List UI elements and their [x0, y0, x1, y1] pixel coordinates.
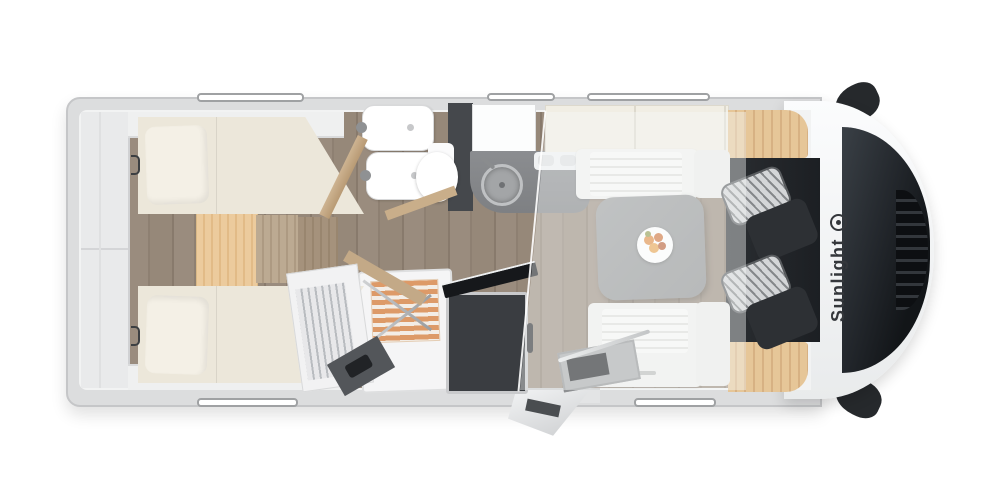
- window-top-rear: [197, 93, 304, 102]
- rear-storage-shelf-divider: [81, 248, 128, 250]
- mattress-seam: [216, 286, 217, 383]
- drain-icon: [499, 182, 505, 188]
- handle-icon: [131, 326, 140, 346]
- faucet-icon: [360, 170, 371, 181]
- window-top-dinette: [587, 93, 710, 101]
- entry-door-open: [508, 390, 590, 442]
- faucet-icon: [356, 122, 367, 133]
- motorhome-floorplan: Sunlight: [0, 0, 1000, 500]
- pillow: [145, 125, 210, 205]
- brand-lockup: Sunlight: [819, 193, 857, 343]
- kitchen-cabinet: [472, 104, 536, 153]
- washbasin: [362, 105, 434, 151]
- drain-icon: [407, 124, 414, 131]
- sun-icon: [830, 214, 847, 231]
- rear-storage: [81, 112, 130, 388]
- rear-storage-seam: [99, 112, 101, 388]
- handle-icon: [131, 155, 140, 175]
- kitchen-sink: [481, 164, 523, 206]
- door-panel: [525, 399, 561, 418]
- window-bottom-rear: [197, 398, 298, 407]
- fridge-cabinet: [446, 292, 528, 394]
- window-bottom-dinette: [634, 398, 716, 407]
- pillow: [145, 295, 210, 375]
- appliance-icon: [344, 354, 374, 379]
- window-top-kitchen: [487, 93, 555, 101]
- mattress-seam: [216, 117, 217, 214]
- drop-down-bed-overlay: [520, 112, 746, 390]
- brand-name: Sunlight: [828, 238, 849, 322]
- bed-step-platform: [196, 213, 258, 287]
